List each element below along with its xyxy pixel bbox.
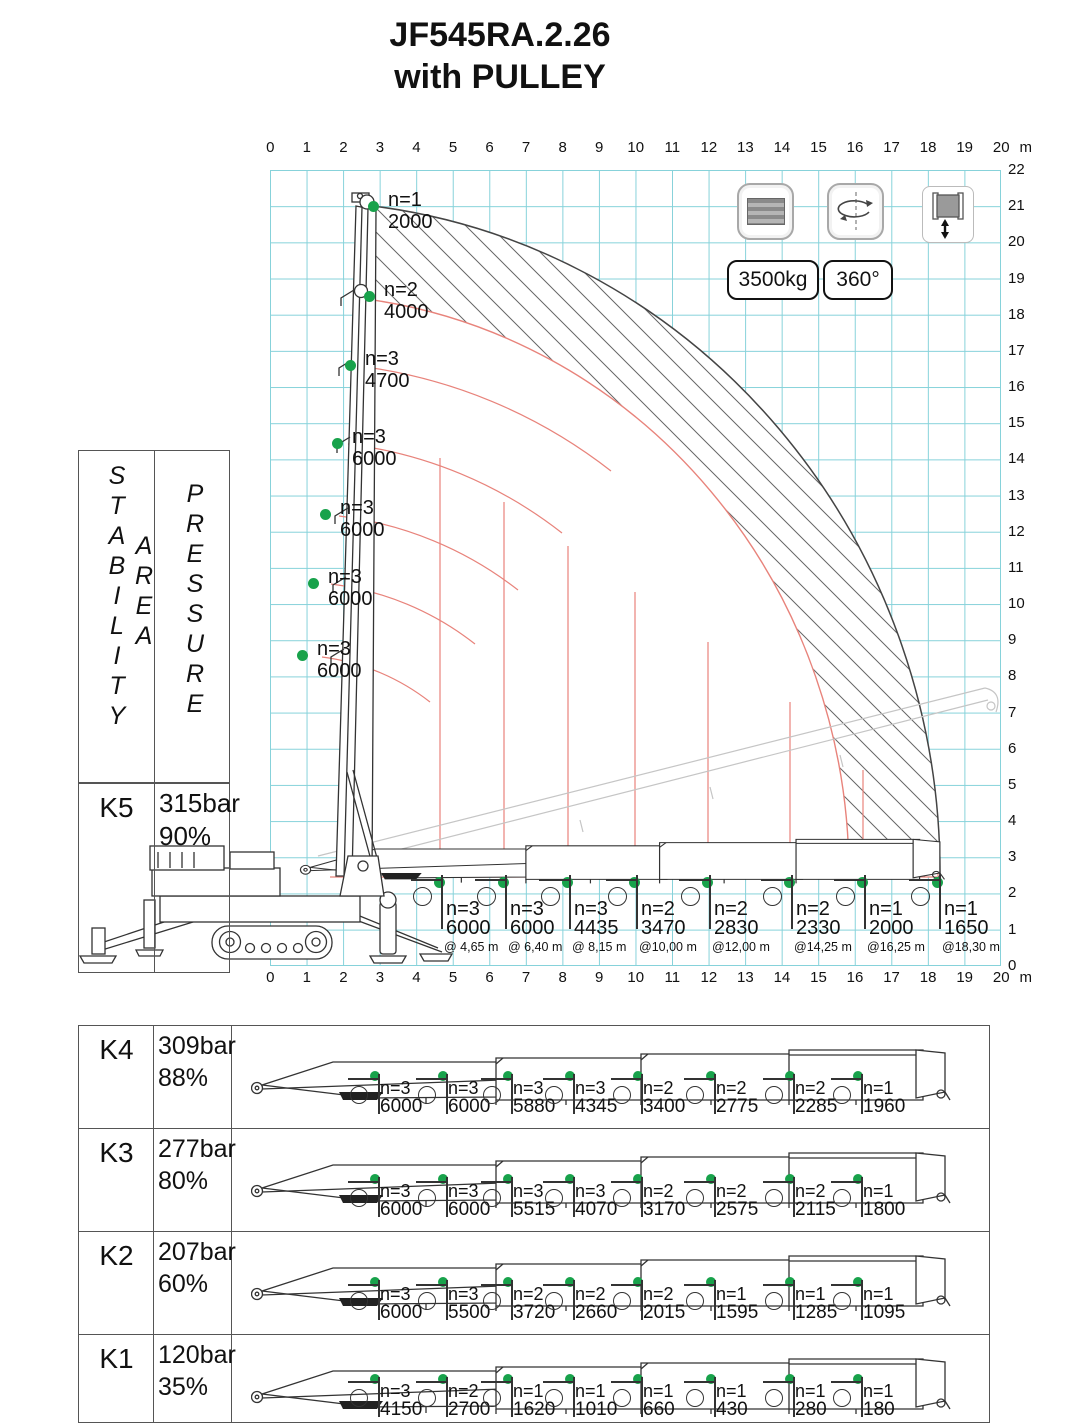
x-tick: 16 — [837, 139, 874, 156]
load-value: 1800 — [863, 1199, 905, 1221]
pulley-icon — [765, 1292, 783, 1310]
x-tick: 12 — [691, 139, 728, 156]
x-tick: 1 — [289, 139, 326, 156]
x-tick: 12 — [691, 969, 728, 986]
pulley-icon — [765, 1086, 783, 1104]
stability-row-k1: K1 120bar 35% n=3 4150 n=2 2700 n=1 — [78, 1334, 990, 1423]
x-tick: 4 — [398, 139, 435, 156]
pulley-icon — [418, 1389, 436, 1407]
x-tick: 0 — [252, 969, 289, 986]
k-label: K2 — [79, 1240, 154, 1272]
y-tick: 10 — [1008, 586, 1025, 622]
x-tick: 11 — [654, 969, 691, 986]
y-tick: 13 — [1008, 478, 1025, 514]
falls-count: n=3 — [340, 497, 374, 520]
x-tick: 5 — [435, 139, 472, 156]
load-value: 2000 — [388, 211, 433, 234]
load-value: 3470 — [641, 917, 686, 940]
load-value: 4435 — [574, 917, 619, 940]
stability-row-k4: K4 309bar 88% n=3 6000 n=3 6000 n=3 — [78, 1025, 990, 1129]
x-tick: 15 — [800, 139, 837, 156]
load-value: 2575 — [716, 1199, 758, 1221]
load-point-dot — [297, 650, 308, 661]
x-tick: 18 — [910, 969, 947, 986]
load-value: 2775 — [716, 1096, 758, 1118]
falls-count: n=3 — [365, 348, 399, 371]
pulley-icon — [613, 1189, 631, 1207]
pulley-icon — [833, 1292, 851, 1310]
pulley-icon — [681, 887, 700, 906]
page-title: JF545RA.2.26 with PULLEY — [180, 14, 820, 98]
x-tick: 14 — [764, 139, 801, 156]
load-value: 2330 — [796, 917, 841, 940]
x-tick: 8 — [544, 139, 581, 156]
x-tick: 14 — [764, 969, 801, 986]
pulley-icon — [613, 1292, 631, 1310]
load-value: 3170 — [643, 1199, 685, 1221]
pulley-icon — [911, 887, 930, 906]
radius-value: @18,30 m — [942, 940, 1000, 954]
y-tick: 16 — [1008, 369, 1025, 405]
radius-value: @12,00 m — [712, 940, 770, 954]
max-capacity-badge: 3500kg — [727, 260, 819, 300]
y-tick: 15 — [1008, 405, 1025, 441]
falls-count: n=3 — [317, 638, 351, 661]
pulley-icon — [413, 887, 432, 906]
y-tick: 22 — [1008, 152, 1025, 188]
pulley-icon — [483, 1292, 501, 1310]
load-value: 4070 — [575, 1199, 617, 1221]
load-value: 1095 — [863, 1302, 905, 1324]
load-value: 4000 — [384, 301, 429, 324]
radius-value: @14,25 m — [794, 940, 852, 954]
x-tick: 17 — [873, 139, 910, 156]
load-point-dot — [368, 201, 379, 212]
falls-count: n=2 — [384, 279, 418, 302]
x-tick: 13 — [727, 139, 764, 156]
x-tick: 7 — [508, 139, 545, 156]
x-tick: 3 — [362, 969, 399, 986]
pulley-icon — [613, 1086, 631, 1104]
y-tick: 21 — [1008, 188, 1025, 224]
k5-pressure: 315bar 90% — [159, 787, 240, 853]
k5-label: K5 — [79, 792, 154, 824]
area-label: AREA — [123, 531, 165, 651]
k-pressure: 207bar 60% — [158, 1236, 236, 1300]
load-value: 2285 — [795, 1096, 837, 1118]
load-value: 6000 — [328, 588, 373, 611]
x-tick: 6 — [471, 139, 508, 156]
pulley-icon — [763, 887, 782, 906]
y-axis-right: 222120191817161514131211109876543210 — [1008, 152, 1025, 984]
y-tick: 9 — [1008, 622, 1025, 658]
pulley-icon — [833, 1189, 851, 1207]
x-tick: 0 — [252, 139, 289, 156]
x-tick: 4 — [398, 969, 435, 986]
falls-count: n=1 — [388, 189, 422, 212]
x-tick: 19 — [946, 139, 983, 156]
pulley-icon — [477, 887, 496, 906]
load-point-dot — [332, 438, 343, 449]
slew-range-badge: 360° — [823, 260, 893, 300]
pulley-icon — [765, 1189, 783, 1207]
pulley-icon — [545, 1086, 563, 1104]
load-point-dot — [320, 509, 331, 520]
pulley-icon — [686, 1292, 704, 1310]
x-tick: 10 — [617, 139, 654, 156]
k-label: K1 — [79, 1343, 154, 1375]
load-value: 660 — [643, 1399, 675, 1421]
pulley-icon — [483, 1389, 501, 1407]
stability-pressure-header: STABILITY AREA PRESSURE — [78, 450, 230, 783]
x-tick: 18 — [910, 139, 947, 156]
k-pressure: 120bar 35% — [158, 1339, 236, 1403]
y-tick: 14 — [1008, 441, 1025, 477]
pulley-icon — [836, 887, 855, 906]
y-tick: 7 — [1008, 695, 1025, 731]
model-name: JF545RA.2.26 — [180, 14, 820, 56]
pulley-icon — [613, 1389, 631, 1407]
model-subtitle: with PULLEY — [180, 56, 820, 98]
pulley-icon — [765, 1389, 783, 1407]
load-value: 1595 — [716, 1302, 758, 1324]
x-tick: 10 — [617, 969, 654, 986]
x-tick: 7 — [508, 969, 545, 986]
rotation-360-icon — [827, 183, 884, 240]
y-tick: 5 — [1008, 767, 1025, 803]
x-tick: 2 — [325, 969, 362, 986]
radius-value: @10,00 m — [639, 940, 697, 954]
load-value: 3400 — [643, 1096, 685, 1118]
pulley-icon — [686, 1389, 704, 1407]
pulley-icon — [350, 1292, 368, 1310]
x-tick: 1 — [289, 969, 326, 986]
y-tick: 11 — [1008, 550, 1025, 586]
x-tick: 16 — [837, 969, 874, 986]
x-tick: 11 — [654, 139, 691, 156]
x-tick: 9 — [581, 139, 618, 156]
x-tick: 3 — [362, 139, 399, 156]
x-tick: 8 — [544, 969, 581, 986]
pulley-icon — [608, 887, 627, 906]
load-value: 1010 — [575, 1399, 617, 1421]
load-value: 4150 — [380, 1399, 422, 1421]
y-tick: 18 — [1008, 297, 1025, 333]
load-value: 1960 — [863, 1096, 905, 1118]
load-value: 180 — [863, 1399, 895, 1421]
x-tick: 19 — [946, 969, 983, 986]
pulley-icon — [350, 1086, 368, 1104]
y-tick: 3 — [1008, 839, 1025, 875]
load-value: 280 — [795, 1399, 827, 1421]
radius-value: @ 6,40 m — [508, 940, 562, 954]
k-pressure: 309bar 88% — [158, 1030, 236, 1094]
load-point-dot — [364, 291, 375, 302]
y-tick: 6 — [1008, 731, 1025, 767]
radius-value: @16,25 m — [867, 940, 925, 954]
counterweight-icon — [737, 183, 794, 240]
y-tick: 2 — [1008, 875, 1025, 911]
y-tick: 17 — [1008, 333, 1025, 369]
y-tick: 12 — [1008, 514, 1025, 550]
load-value: 6000 — [510, 917, 555, 940]
falls-count: n=3 — [352, 426, 386, 449]
pulley-icon — [545, 1389, 563, 1407]
load-value: 6000 — [446, 917, 491, 940]
x-tick: 15 — [800, 969, 837, 986]
load-value: 6000 — [380, 1199, 422, 1221]
k-label: K4 — [79, 1034, 154, 1066]
pulley-icon — [545, 1189, 563, 1207]
load-value: 6000 — [317, 660, 362, 683]
load-value: 430 — [716, 1399, 748, 1421]
radius-value: @ 8,15 m — [572, 940, 626, 954]
y-tick: 19 — [1008, 261, 1025, 297]
pulley-icon — [686, 1086, 704, 1104]
stability-row-k2: K2 207bar 60% n=3 6000 n=3 5500 n=2 — [78, 1231, 990, 1335]
pulley-icon — [833, 1389, 851, 1407]
pulley-icon — [545, 1292, 563, 1310]
y-tick: 4 — [1008, 803, 1025, 839]
y-tick: 20 — [1008, 224, 1025, 260]
pulley-icon — [350, 1389, 368, 1407]
load-value: 1285 — [795, 1302, 837, 1324]
x-tick: 2 — [325, 139, 362, 156]
load-value: 2000 — [869, 917, 914, 940]
x-tick: 5 — [435, 969, 472, 986]
pulley-icon — [686, 1189, 704, 1207]
x-tick: 13 — [727, 969, 764, 986]
load-value: 2115 — [795, 1199, 836, 1221]
load-value: 6000 — [352, 448, 397, 471]
pulley-icon — [833, 1086, 851, 1104]
load-value: 6000 — [380, 1096, 422, 1118]
pressure-label: PRESSURE — [167, 479, 223, 719]
pulley-icon — [418, 1086, 436, 1104]
load-value: 2015 — [643, 1302, 685, 1324]
load-value: 4345 — [575, 1096, 617, 1118]
y-tick: 0 — [1008, 948, 1025, 984]
load-point-dot — [308, 578, 319, 589]
load-value: 6000 — [340, 519, 385, 542]
stability-row-k3: K3 277bar 80% n=3 6000 n=3 6000 n=3 — [78, 1128, 990, 1232]
load-value: 1650 — [944, 917, 989, 940]
y-tick: 8 — [1008, 658, 1025, 694]
radius-value: @ 4,65 m — [444, 940, 498, 954]
pulley-icon — [483, 1086, 501, 1104]
winch-pulley-icon — [922, 186, 974, 243]
pulley-icon — [483, 1189, 501, 1207]
x-axis-top: 01234567891011121314151617181920 m — [252, 139, 1052, 156]
load-value: 4700 — [365, 370, 410, 393]
x-tick: 9 — [581, 969, 618, 986]
pulley-icon — [418, 1189, 436, 1207]
stability-row-k5: K5 315bar 90% — [78, 783, 230, 973]
pulley-icon — [350, 1189, 368, 1207]
pulley-icon — [541, 887, 560, 906]
x-tick: 6 — [471, 969, 508, 986]
pulley-icon — [418, 1292, 436, 1310]
x-axis-bottom: 01234567891011121314151617181920 m — [252, 969, 1052, 986]
y-tick: 1 — [1008, 912, 1025, 948]
load-value: 2660 — [575, 1302, 617, 1324]
load-value: 6000 — [380, 1302, 422, 1324]
k-label: K3 — [79, 1137, 154, 1169]
load-point-dot — [345, 360, 356, 371]
k-pressure: 277bar 80% — [158, 1133, 236, 1197]
load-value: 2830 — [714, 917, 759, 940]
falls-count: n=3 — [328, 566, 362, 589]
x-tick: 17 — [873, 969, 910, 986]
